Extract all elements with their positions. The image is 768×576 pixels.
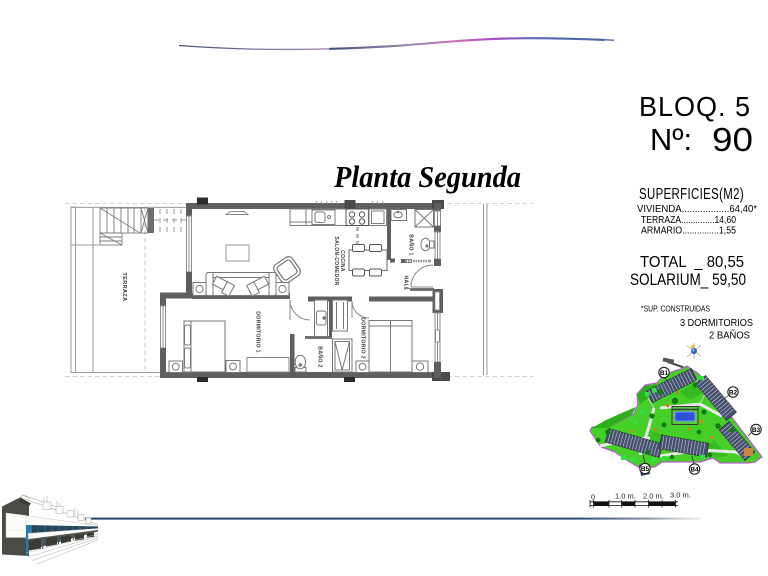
svg-text:TERRAZA..............14,60: TERRAZA..............14,60 <box>641 215 736 226</box>
svg-text:TOTAL _ 80,55: TOTAL _ 80,55 <box>640 254 744 271</box>
svg-text:SOLARIUM_ 59,50: SOLARIUM_ 59,50 <box>630 271 746 289</box>
svg-text:*SUP. CONSTRUIDAS: *SUP. CONSTRUIDAS <box>641 305 710 314</box>
svg-text:B3: B3 <box>752 427 761 434</box>
svg-text:DORMITORIO 1: DORMITORIO 1 <box>255 311 261 353</box>
svg-text:B1: B1 <box>660 370 669 377</box>
svg-text:SUPERFICIES(M2): SUPERFICIES(M2) <box>639 186 744 203</box>
svg-text:Nº:: Nº: <box>650 122 692 157</box>
svg-text:1.0 m.: 1.0 m. <box>615 492 636 501</box>
svg-text:BLOQ. 5: BLOQ. 5 <box>639 91 751 122</box>
svg-text:BAÑO 2: BAÑO 2 <box>317 346 324 367</box>
svg-text:B4: B4 <box>690 467 699 474</box>
svg-text:COCINA: COCINA <box>339 250 345 272</box>
svg-text:90: 90 <box>712 121 753 158</box>
svg-text:HALL: HALL <box>403 275 409 291</box>
svg-text:SALON-COMEDOR: SALON-COMEDOR <box>333 236 339 285</box>
svg-text:BAÑO 1: BAÑO 1 <box>408 234 415 255</box>
svg-text:2.0 m.: 2.0 m. <box>643 492 664 501</box>
svg-text:ARMARIO...............1,55: ARMARIO...............1,55 <box>641 226 736 237</box>
svg-text:3.0 m.: 3.0 m. <box>670 491 691 500</box>
svg-text:DORMITORIO 2: DORMITORIO 2 <box>360 317 366 359</box>
svg-text:3 DORMITORIOS: 3 DORMITORIOS <box>680 317 753 329</box>
svg-text:B2: B2 <box>729 390 738 397</box>
svg-text:0: 0 <box>591 493 595 502</box>
svg-text:Planta Segunda: Planta Segunda <box>333 159 521 194</box>
svg-text:TERRAZA: TERRAZA <box>121 272 127 301</box>
svg-text:VIVIENDA..................64,4: VIVIENDA..................64,40* <box>637 204 757 215</box>
svg-text:2 BAÑOS: 2 BAÑOS <box>709 329 750 342</box>
svg-text:B5: B5 <box>641 466 650 473</box>
